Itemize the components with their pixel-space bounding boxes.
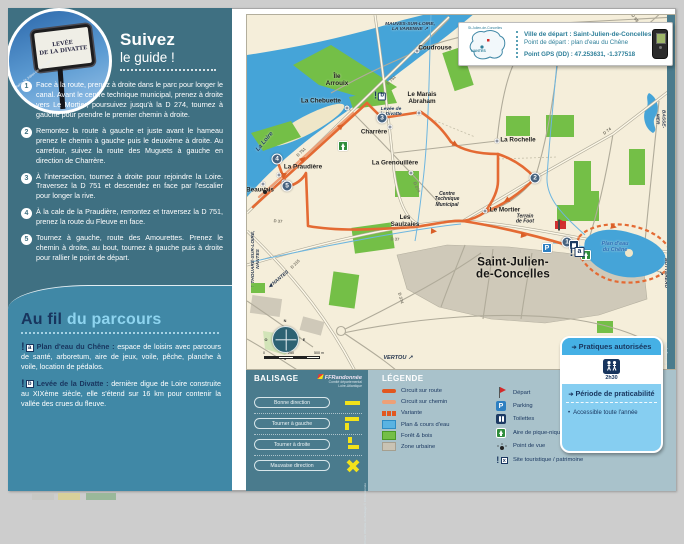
legend-item: x Site touristique / patrimoine xyxy=(496,455,596,466)
place-label: MAUVES-SUR-LOIRE, LA VARENNE ↗ xyxy=(385,22,435,32)
aufil-item: !aPlan d'eau du Chêne : espace de loisir… xyxy=(21,342,221,372)
start-info-box: St-Julien-de-Concelles NANTES Ville de d… xyxy=(458,22,673,66)
step-list: 1 Face à la route, prenez à droite dans … xyxy=(21,80,223,263)
aufil-item-lead: Plan d'eau du Chêne : xyxy=(37,342,115,351)
compass-rose xyxy=(272,326,299,353)
place-label: Les Saulzaies xyxy=(391,215,420,229)
legend-col1: Circuit sur route Circuit sur chemin Var… xyxy=(382,387,482,466)
map-credit-text: © cartographie xyxy=(664,342,668,365)
trail-map: CoudrouseÎle ArrouixLa ChebuetteLe Marai… xyxy=(246,14,676,370)
site-a-marker: !a xyxy=(570,245,585,259)
legend-symbol xyxy=(382,398,396,406)
road-label: D 37 xyxy=(273,218,282,224)
legend-item-label: Parking xyxy=(513,403,533,409)
legend-item: Circuit sur chemin xyxy=(382,398,482,406)
place-dot xyxy=(495,139,500,144)
picnic-icon-chebuette xyxy=(338,141,348,151)
aufil-heading-light: du parcours xyxy=(62,311,161,328)
point-gps: Point GPS (DD) : 47.253631, -1.377518 xyxy=(524,51,652,58)
place-dot xyxy=(409,171,414,176)
balisage-row: Mauvaise direction xyxy=(254,455,362,476)
place-label: Charrère xyxy=(361,130,387,137)
balisage-mark-icon xyxy=(344,396,362,409)
step-number: 5 xyxy=(21,234,32,245)
aufil-item: !bLevée de la Divatte : dernière digue d… xyxy=(21,379,221,409)
place-label: VERTOU ↗ xyxy=(383,355,412,361)
legend-symbol xyxy=(382,387,396,395)
place-label: Île Arrouix xyxy=(326,74,348,88)
guide-title-line2: le guide ! xyxy=(120,50,216,65)
step-number: 2 xyxy=(21,127,32,138)
ville-depart: Ville de départ : Saint-Julien-de-Concel… xyxy=(524,31,652,38)
route-step-badge: 4 xyxy=(272,154,283,165)
balisage-side-credit: Charte Officielle du Balisage © FFRandon… xyxy=(363,483,367,544)
balisage-label-pill: Tourner à gauche xyxy=(254,418,330,429)
legend-item: Circuit sur route xyxy=(382,387,482,395)
title-dotted-rule xyxy=(120,69,216,71)
road-label: D 37 xyxy=(390,236,399,241)
balisage-row: Bonne direction xyxy=(254,393,362,413)
legend-item-label: Zone urbaine xyxy=(401,444,435,450)
legend-icon xyxy=(496,387,508,398)
balisage-panel: BALISAGE FFRandonnée Comité départementa… xyxy=(246,370,368,491)
place-label: La Rochelle xyxy=(500,138,535,145)
place-label: Saint-Julien- de-Concelles xyxy=(476,257,550,282)
place-dot xyxy=(277,173,282,178)
legend-item: Plan & cours d'eau xyxy=(382,421,482,429)
sign-text: LEVÉE DE LA DIVATTE xyxy=(38,38,88,58)
balisage-label-pill: Tourner à droite xyxy=(254,439,330,450)
walkers-icon xyxy=(603,359,620,374)
legend-item-label: Circuit sur chemin xyxy=(401,399,447,405)
step-item: 5 Tournez à gauche, route des Amourettes… xyxy=(21,233,223,263)
parking-icon: P xyxy=(542,243,552,253)
balisage-row: Tourner à gauche xyxy=(254,413,362,434)
legend-item: Forêt & bois xyxy=(382,432,482,440)
ffrandonnee-logo: FFRandonnée Comité départemental Loire-A… xyxy=(318,374,362,389)
desktop-fragment xyxy=(58,493,80,500)
step-number: 4 xyxy=(21,208,32,219)
period-note: Accessible toute l'année xyxy=(562,403,661,423)
legend-icon xyxy=(496,428,506,438)
guide-title: Suivez le guide ! xyxy=(120,30,216,71)
aufil-heading-bold: Au fil xyxy=(21,311,62,328)
place-dot xyxy=(388,125,393,130)
ffr-logo-sub: Comité départemental Loire-Atlantique xyxy=(318,381,362,388)
step-text: Remontez la route à gauche et juste avan… xyxy=(36,126,223,166)
legend-item-label: Aire de pique-nique xyxy=(513,430,563,436)
step-number: 1 xyxy=(21,81,32,92)
balisage-label-pill: Mauvaise direction xyxy=(254,460,330,471)
site-marker-icon: !a xyxy=(21,343,34,352)
balisage-label-pill: Bonne direction xyxy=(254,397,330,408)
legend-icon: P xyxy=(496,401,506,411)
place-label: La Praudière xyxy=(284,165,322,172)
balisage-mark-icon xyxy=(344,438,362,451)
legend-item-label: Circuit sur route xyxy=(401,388,442,394)
place-label: Centre Technique Municipal xyxy=(435,192,460,208)
legend-symbol xyxy=(382,443,396,451)
site-marker-icon: !b xyxy=(21,380,34,389)
place-dot xyxy=(345,106,350,111)
desktop-fragment xyxy=(32,493,54,500)
route-step-badge: 3 xyxy=(377,113,388,124)
region-minimap: St-Julien-de-Concelles NANTES xyxy=(463,25,513,63)
legend-icon: x xyxy=(496,455,508,466)
legend-item-label: Toilettes xyxy=(513,416,534,422)
step-text: Face à la route, prenez à droite dans le… xyxy=(36,80,223,120)
start-info-text: Ville de départ : Saint-Julien-de-Concel… xyxy=(516,31,652,58)
legend-icon xyxy=(496,414,506,424)
route-step-badge: 2 xyxy=(530,173,541,184)
legend-item: Zone urbaine xyxy=(382,443,482,451)
gps-device-icon xyxy=(652,29,668,59)
map-credit-strip: © cartographie xyxy=(667,15,675,370)
aufil-section: Au fil du parcours !aPlan d'eau du Chêne… xyxy=(21,311,221,416)
legend-item-label: Plan & cours d'eau xyxy=(401,422,449,428)
pratiques-box: Pratiques autorisées 2h30 Période de pra… xyxy=(560,336,663,453)
legend-item: Variante xyxy=(382,409,482,417)
legend-item-label: Point de vue xyxy=(513,443,545,449)
place-label: Coudrouse xyxy=(418,46,451,53)
legend-symbol xyxy=(382,409,396,417)
leaflet-page: LEVÉE DE LA DIVATTE © Mairie St-Julien-d… xyxy=(0,0,684,500)
balisage-rows: Bonne direction Tourner à gauche Tourner… xyxy=(254,393,362,476)
legend-symbol xyxy=(382,421,396,429)
place-dot xyxy=(417,111,422,116)
legend-item-label: Site touristique / patrimoine xyxy=(513,457,583,463)
site-b-marker: !b xyxy=(374,91,386,102)
desktop-fragment xyxy=(86,493,116,500)
step-text: À l'intersection, tournez à droite pour … xyxy=(36,172,223,202)
scale-bar xyxy=(264,356,320,359)
map-geography xyxy=(247,15,676,370)
aufil-heading: Au fil du parcours xyxy=(21,311,221,329)
period-header: Période de praticabilité xyxy=(566,384,657,403)
place-label: La Chebuette xyxy=(301,99,341,106)
minimap-label-nantes: NANTES xyxy=(471,49,486,53)
step-item: 1 Face à la route, prenez à droite dans … xyxy=(21,80,223,120)
step-text: À la cale de la Praudière, remontez et t… xyxy=(36,207,223,227)
viewpoint-icon xyxy=(260,187,270,195)
balisage-title: BALISAGE xyxy=(254,374,299,383)
step-number: 3 xyxy=(21,173,32,184)
legend-icon xyxy=(496,441,508,452)
legend-item-label: Variante xyxy=(401,410,422,416)
legend-symbol xyxy=(382,432,396,440)
balisage-row: Tourner à droite xyxy=(254,434,362,455)
legend-item-label: Forêt & bois xyxy=(401,433,432,439)
left-guide-panel: LEVÉE DE LA DIVATTE © Mairie St-Julien-d… xyxy=(8,8,232,491)
guide-title-line1: Suivez xyxy=(120,30,216,50)
balisage-mark-icon xyxy=(344,417,362,430)
place-dot xyxy=(483,209,488,214)
place-label: Le Marais Abraham xyxy=(407,92,436,106)
place-label: La Grenouillère xyxy=(372,161,418,168)
place-label: ↑ THOUARÉ-SUR-LOIRE, NANTES xyxy=(251,231,261,288)
place-label: Terrain de Foot xyxy=(516,215,534,226)
point-depart: Point de départ : plan d'eau du Chêne xyxy=(524,39,652,46)
route-step-badge: 5 xyxy=(282,181,293,192)
duration-label: 2h30 xyxy=(605,375,617,381)
balisage-mark-icon xyxy=(344,459,362,472)
minimap-label-town: St-Julien-de-Concelles xyxy=(465,27,505,31)
aufil-dotted-rule xyxy=(21,332,219,334)
depart-flag-icon xyxy=(556,220,566,231)
place-label: Plan d'eau du Chêne xyxy=(602,242,629,254)
pratiques-header: Pratiques autorisées xyxy=(562,338,661,355)
aufil-items: !aPlan d'eau du Chêne : espace de loisir… xyxy=(21,342,221,409)
step-text: Tournez à gauche, route des Amourettes. … xyxy=(36,233,223,263)
aufil-item-lead: Levée de la Divatte : xyxy=(37,379,109,388)
step-item: 4 À la cale de la Praudière, remontez et… xyxy=(21,207,223,227)
step-item: 3 À l'intersection, tournez à droite pou… xyxy=(21,172,223,202)
legend-item-label: Départ xyxy=(513,390,530,396)
place-label: Le Mortier xyxy=(490,208,520,215)
step-item: 2 Remontez la route à gauche et juste av… xyxy=(21,126,223,166)
